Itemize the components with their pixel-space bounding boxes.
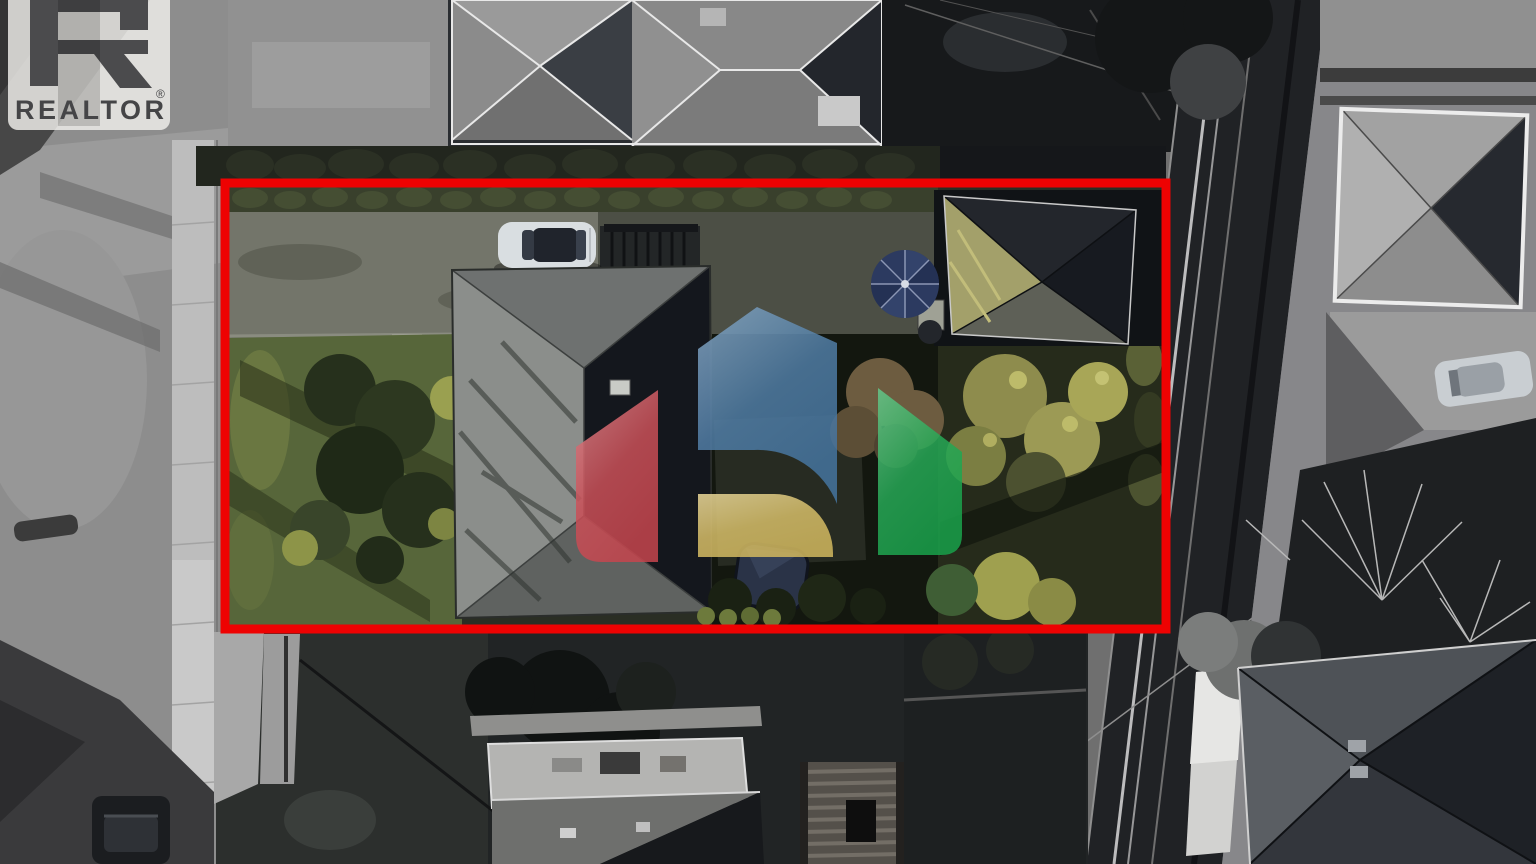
lot-hedge-top (228, 186, 938, 212)
main-house-roof (452, 266, 712, 618)
south-pergola (800, 762, 904, 864)
south-east-yard (904, 626, 1086, 864)
car-windshield (576, 230, 586, 260)
fence-line (1320, 68, 1536, 82)
sidewalk-corner (214, 632, 264, 804)
front-street-patch (252, 42, 430, 108)
subject-lot (226, 186, 1168, 628)
fence-line (1320, 96, 1536, 105)
hip-roof-house (1238, 640, 1536, 864)
front-lawn (226, 334, 474, 628)
north-strip (196, 0, 1192, 186)
realtor-watermark: REALTOR ® (8, 0, 170, 130)
car-glass-roof (532, 228, 578, 262)
south-strip (214, 626, 1088, 864)
east-yard (1320, 0, 1536, 68)
south-house-roof (492, 792, 764, 864)
registered-trademark-symbol: ® (156, 87, 165, 101)
aerial-photo: REALTOR ® (0, 0, 1536, 864)
north-neighbor-house (448, 0, 884, 150)
south-path (260, 634, 300, 784)
realtor-wordmark: REALTOR (15, 95, 168, 125)
roof-dormer (700, 8, 726, 26)
pyramid-roof-house (1335, 109, 1528, 307)
patio-table (918, 320, 942, 344)
garage (918, 190, 1168, 346)
roof-skylight (818, 96, 860, 126)
lawn-patch (284, 790, 376, 850)
aerial-photo-stage: REALTOR ® (0, 0, 1536, 864)
car-rear-window (522, 230, 534, 260)
chimney (610, 380, 630, 395)
parked-dark-car (92, 796, 170, 864)
